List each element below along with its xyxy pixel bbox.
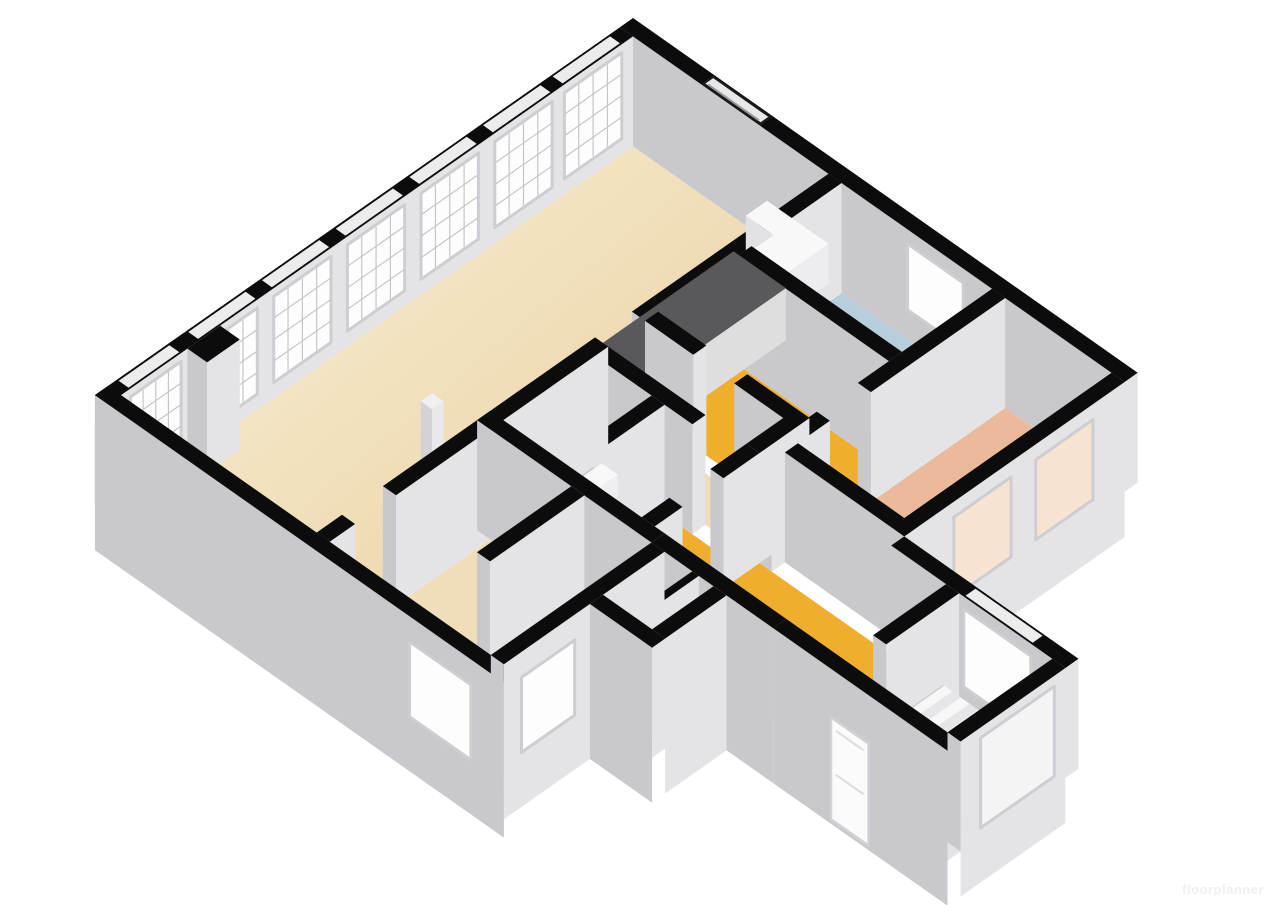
exterior-wall-north-face-se [1125,373,1138,492]
floorplan-scene [0,0,1280,905]
wall-bedroom-west-n-face-sw [858,383,871,502]
watermark-text: floorplanner [1182,882,1264,897]
wall-corridor-north-face-se [1065,659,1078,778]
floorplan-3d-render: floorplanner [0,0,1280,905]
wall-hall-south-face-se [692,415,705,534]
exterior-wall-closet-south-face-se [652,639,665,758]
chimney-breast-face-se [207,340,240,473]
exterior-wall-arm-east-face-sw [948,732,961,851]
exterior-wall-block-east-face-sw [491,655,504,774]
